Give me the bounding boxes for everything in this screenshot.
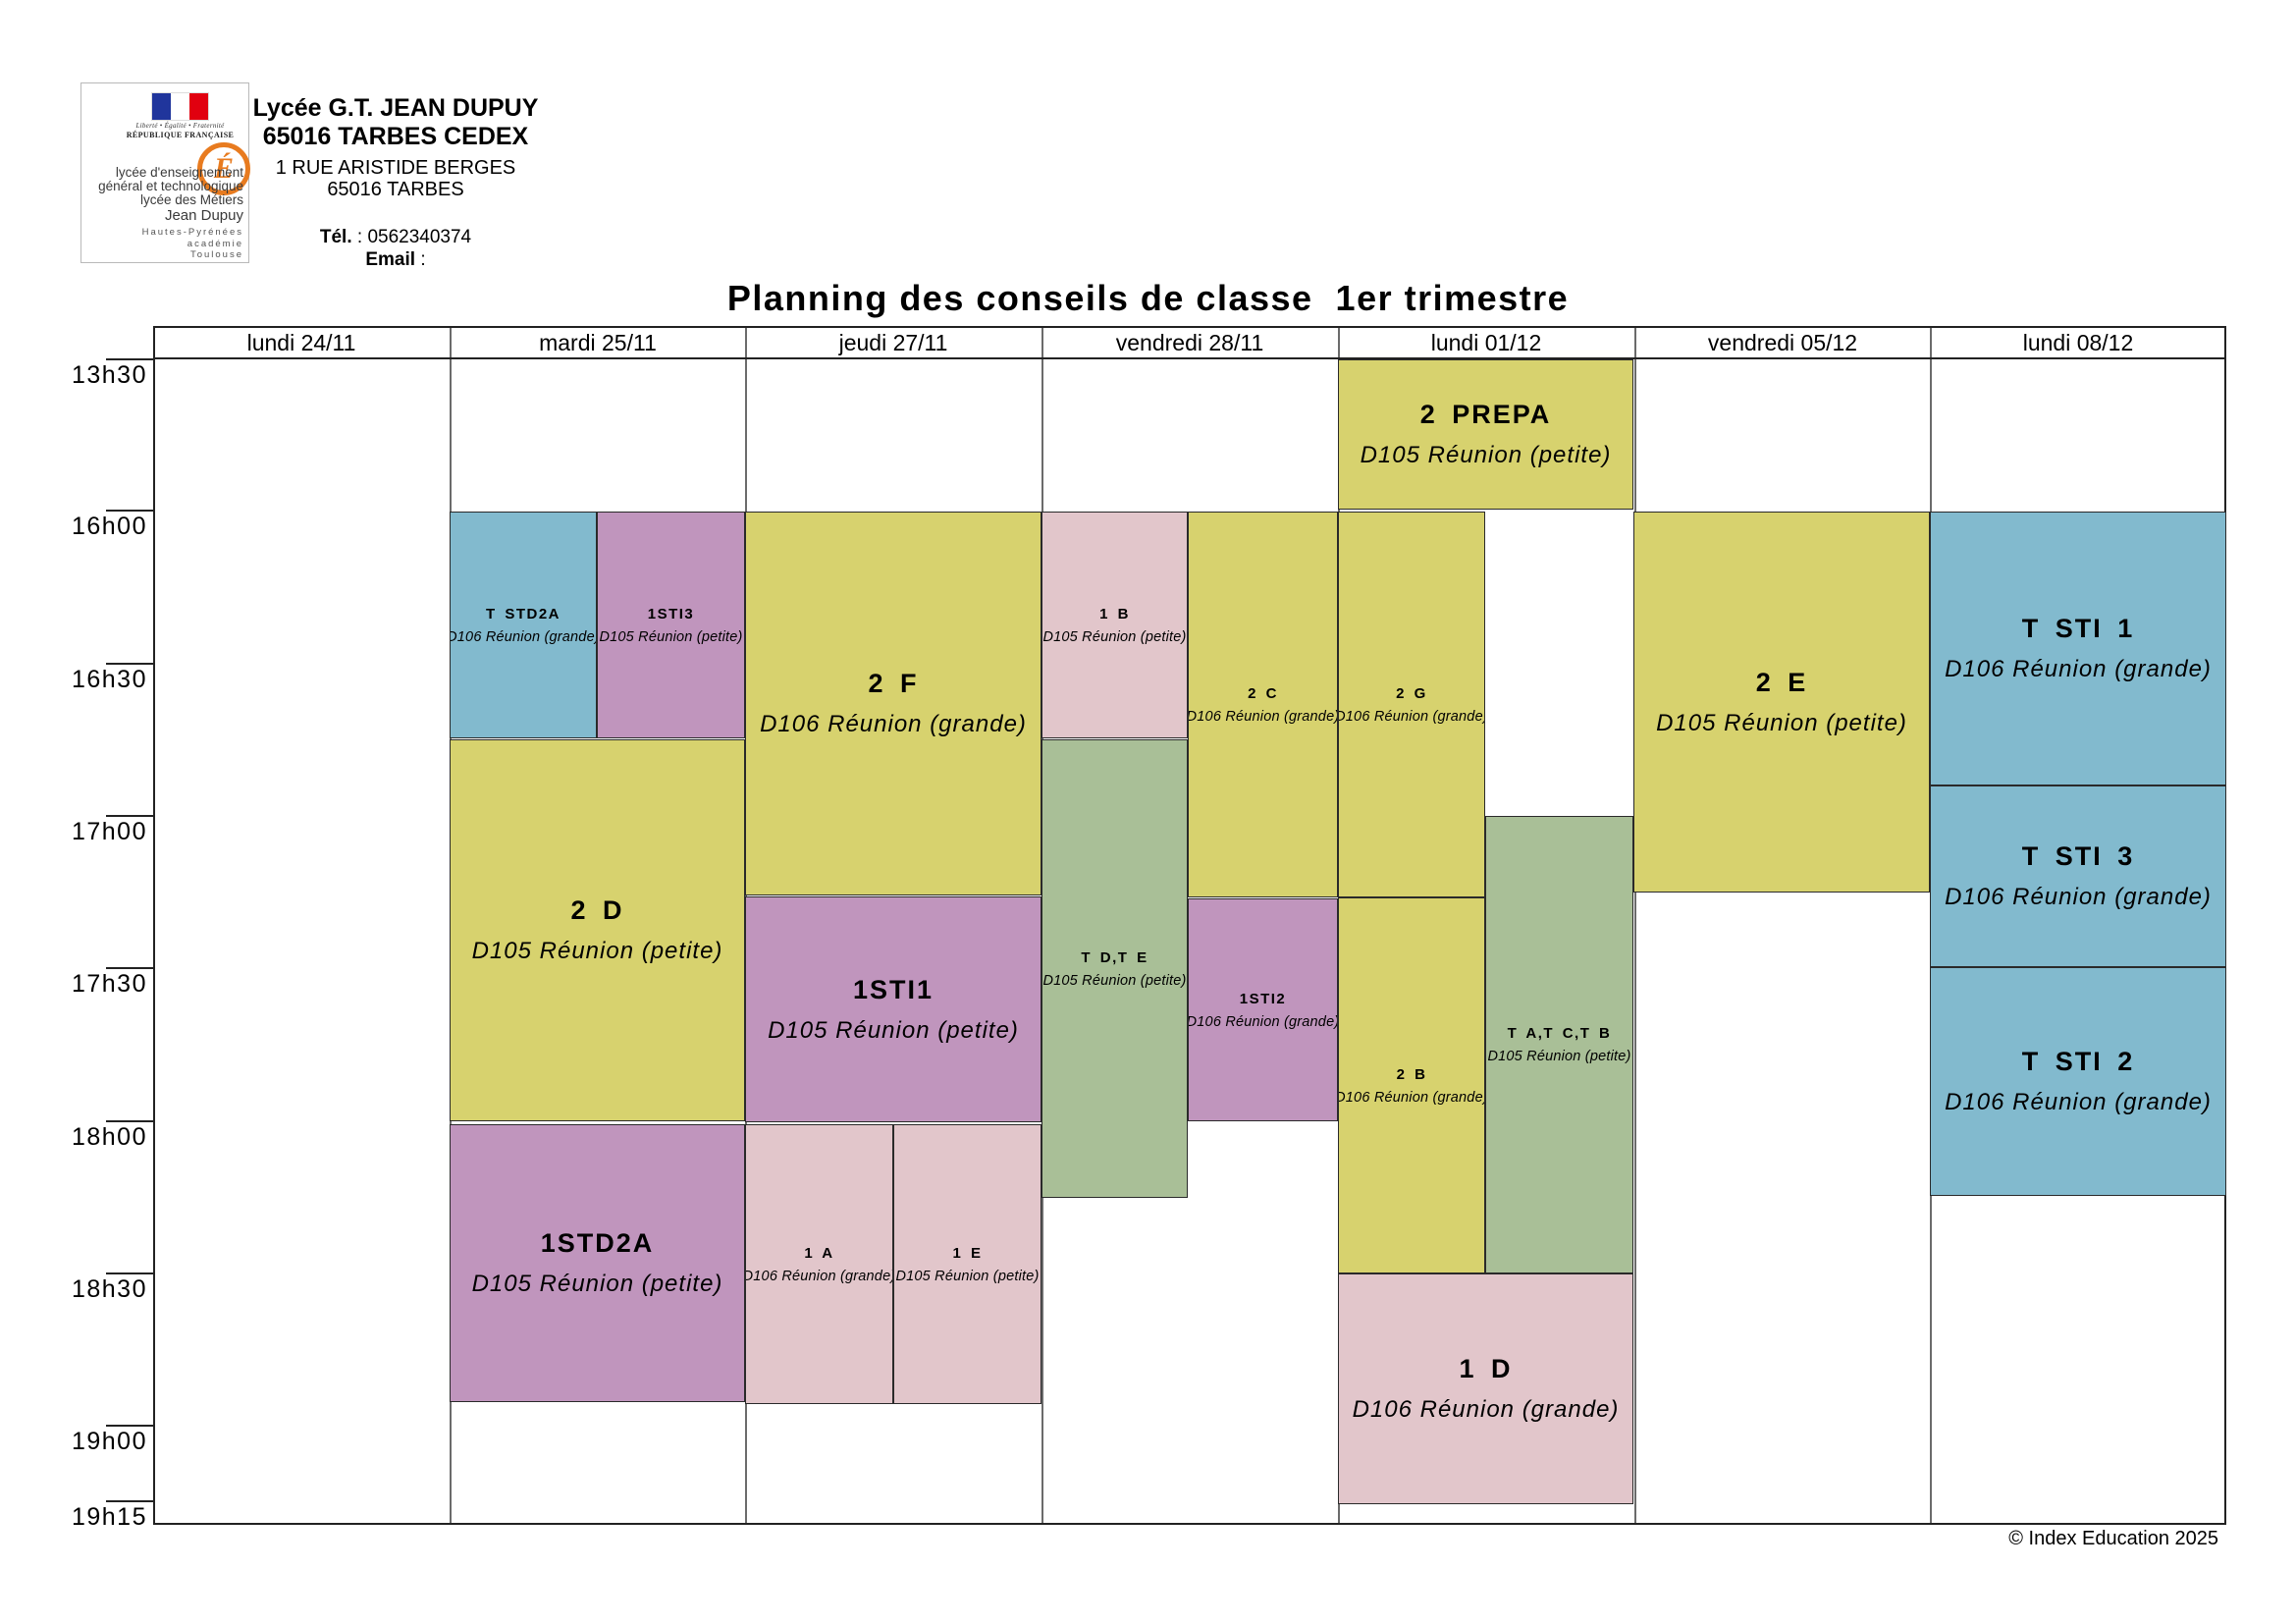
class-name-label: 1 E	[952, 1245, 982, 1262]
class-name-label: 1 D	[1459, 1354, 1512, 1384]
schedule-block: 2 CD106 Réunion (grande)	[1188, 512, 1338, 897]
day-header: lundi 08/12	[1930, 330, 2226, 355]
time-label: 19h00	[39, 1428, 147, 1456]
school-name: Lycée G.T. JEAN DUPUY	[234, 94, 558, 123]
logo-text-line: Jean Dupuy	[98, 207, 243, 224]
schedule-block: 2 DD105 Réunion (petite)	[450, 739, 745, 1121]
logo-subtext: Hautes-Pyrénées académie Toulouse	[142, 227, 243, 261]
room-label: D106 Réunion (grande)	[1188, 709, 1338, 725]
time-tick	[106, 967, 153, 969]
room-label: D106 Réunion (grande)	[1945, 656, 2212, 683]
room-label: D106 Réunion (grande)	[1338, 1090, 1485, 1106]
room-label: D105 Réunion (petite)	[895, 1269, 1039, 1284]
time-label: 13h30	[39, 361, 147, 390]
time-label: 16h00	[39, 513, 147, 541]
planning-page: Liberté • Égalité • Fraternité RÉPUBLIQU…	[0, 0, 2296, 1624]
logo-text: lycée d'enseignement général et technolo…	[98, 166, 243, 224]
school-city: 65016 TARBES CEDEX	[234, 123, 558, 151]
class-name-label: 2 B	[1397, 1066, 1427, 1083]
page-title: Planning des conseils de classe 1er trim…	[0, 278, 2296, 319]
room-label: D105 Réunion (petite)	[1042, 973, 1186, 989]
time-label: 17h00	[39, 818, 147, 846]
class-name-label: T A,T C,T B	[1508, 1025, 1612, 1042]
class-name-label: 2 G	[1396, 685, 1427, 702]
logo-subtext-line: académie	[142, 239, 243, 250]
class-name-label: 1STI3	[648, 606, 695, 623]
room-label: D105 Réunion (petite)	[1656, 710, 1907, 737]
class-name-label: 2 D	[570, 895, 623, 926]
time-tick	[106, 663, 153, 665]
schedule-block: 1STD2AD105 Réunion (petite)	[450, 1124, 745, 1402]
class-name-label: 2 E	[1756, 668, 1808, 698]
room-label: D105 Réunion (petite)	[1487, 1049, 1630, 1064]
class-name-label: 1 A	[804, 1245, 833, 1262]
room-label: D106 Réunion (grande)	[760, 711, 1027, 738]
schedule-block: 1 AD106 Réunion (grande)	[745, 1124, 893, 1404]
logo-text-line: lycée des Métiers	[98, 193, 243, 207]
schedule-block: 1STI3D105 Réunion (petite)	[597, 512, 745, 738]
class-name-label: 2 PREPA	[1420, 400, 1552, 430]
schedule-block: T STI 2D106 Réunion (grande)	[1930, 967, 2226, 1196]
class-name-label: T STD2A	[486, 606, 561, 623]
class-name-label: 2 F	[868, 669, 918, 699]
logo-text-line: général et technologique	[98, 180, 243, 193]
class-name-label: T D,T E	[1081, 949, 1148, 966]
logo-text-line: lycée d'enseignement	[98, 166, 243, 180]
header-separator	[153, 357, 2226, 359]
room-label: D105 Réunion (petite)	[472, 938, 723, 965]
time-tick	[106, 815, 153, 817]
logo-motto: Liberté • Égalité • Fraternité	[109, 122, 251, 130]
day-header: lundi 24/11	[153, 330, 450, 355]
day-header: vendredi 28/11	[1041, 330, 1338, 355]
class-name-label: T STI 2	[2022, 1047, 2135, 1077]
day-header: vendredi 05/12	[1634, 330, 1931, 355]
logo-subtext-line: Hautes-Pyrénées	[142, 227, 243, 239]
time-tick	[106, 1120, 153, 1122]
class-name-label: T STI 1	[2022, 614, 2135, 644]
school-email: Email :	[234, 248, 558, 271]
room-label: D105 Réunion (petite)	[472, 1271, 723, 1298]
room-label: D106 Réunion (grande)	[1945, 884, 2212, 911]
schedule-block: 2 ED105 Réunion (petite)	[1633, 512, 1930, 893]
time-tick	[106, 1425, 153, 1427]
room-label: D106 Réunion (grande)	[1945, 1089, 2212, 1116]
schedule-block: T D,T ED105 Réunion (petite)	[1041, 739, 1188, 1198]
schedule-block: 1 DD106 Réunion (grande)	[1338, 1273, 1633, 1504]
schedule-block: 2 FD106 Réunion (grande)	[745, 512, 1041, 895]
class-name-label: T STI 3	[2022, 841, 2135, 872]
class-name-label: 1STD2A	[541, 1228, 655, 1259]
room-label: D106 Réunion (grande)	[1188, 1014, 1338, 1030]
class-name-label: 1STI1	[853, 975, 934, 1005]
room-label: D105 Réunion (petite)	[599, 629, 742, 645]
schedule-block: T STI 1D106 Réunion (grande)	[1930, 512, 2226, 785]
class-name-label: 1 B	[1099, 606, 1130, 623]
time-tick	[106, 358, 153, 360]
day-header: mardi 25/11	[450, 330, 746, 355]
time-label: 18h00	[39, 1123, 147, 1152]
schedule-block: 2 GD106 Réunion (grande)	[1338, 512, 1485, 897]
schedule-block: T STI 3D106 Réunion (grande)	[1930, 785, 2226, 967]
class-name-label: 2 C	[1248, 685, 1278, 702]
copyright: © Index Education 2025	[0, 1528, 2218, 1550]
time-tick	[106, 510, 153, 512]
room-label: D105 Réunion (petite)	[1042, 629, 1186, 645]
time-label: 17h30	[39, 970, 147, 999]
room-label: D106 Réunion (grande)	[745, 1269, 893, 1284]
logo-subtext-line: Toulouse	[142, 249, 243, 261]
time-label: 18h30	[39, 1275, 147, 1304]
schedule-block: 1 ED105 Réunion (petite)	[893, 1124, 1041, 1404]
schedule-block: 2 BD106 Réunion (grande)	[1338, 897, 1485, 1273]
time-tick	[106, 1272, 153, 1274]
day-header: lundi 01/12	[1338, 330, 1634, 355]
french-flag-icon	[152, 93, 208, 120]
schedule-block: 1STI1D105 Réunion (petite)	[745, 896, 1041, 1122]
room-label: D106 Réunion (grande)	[1338, 709, 1485, 725]
room-label: D105 Réunion (petite)	[1361, 442, 1612, 469]
school-phone: Tél. : 0562340374	[234, 226, 558, 248]
logo-republic: RÉPUBLIQUE FRANÇAISE	[109, 131, 251, 139]
time-label: 16h30	[39, 666, 147, 694]
day-header: jeudi 27/11	[745, 330, 1041, 355]
school-logo: Liberté • Égalité • Fraternité RÉPUBLIQU…	[80, 82, 249, 263]
school-address-line2: 65016 TARBES	[234, 179, 558, 200]
room-label: D106 Réunion (grande)	[450, 629, 597, 645]
time-tick	[106, 1500, 153, 1502]
schedule-block: T A,T C,T BD105 Réunion (petite)	[1485, 816, 1633, 1273]
room-label: D106 Réunion (grande)	[1353, 1396, 1620, 1424]
room-label: D105 Réunion (petite)	[768, 1017, 1019, 1045]
school-address-line1: 1 RUE ARISTIDE BERGES	[234, 157, 558, 179]
school-info: Lycée G.T. JEAN DUPUY 65016 TARBES CEDEX…	[234, 94, 558, 271]
class-name-label: 1STI2	[1240, 991, 1287, 1007]
schedule-block: 2 PREPAD105 Réunion (petite)	[1338, 359, 1633, 510]
time-label: 19h15	[39, 1503, 147, 1532]
schedule-block: 1 BD105 Réunion (petite)	[1041, 512, 1188, 738]
schedule-block: 1STI2D106 Réunion (grande)	[1188, 898, 1338, 1121]
schedule-block: T STD2AD106 Réunion (grande)	[450, 512, 597, 738]
